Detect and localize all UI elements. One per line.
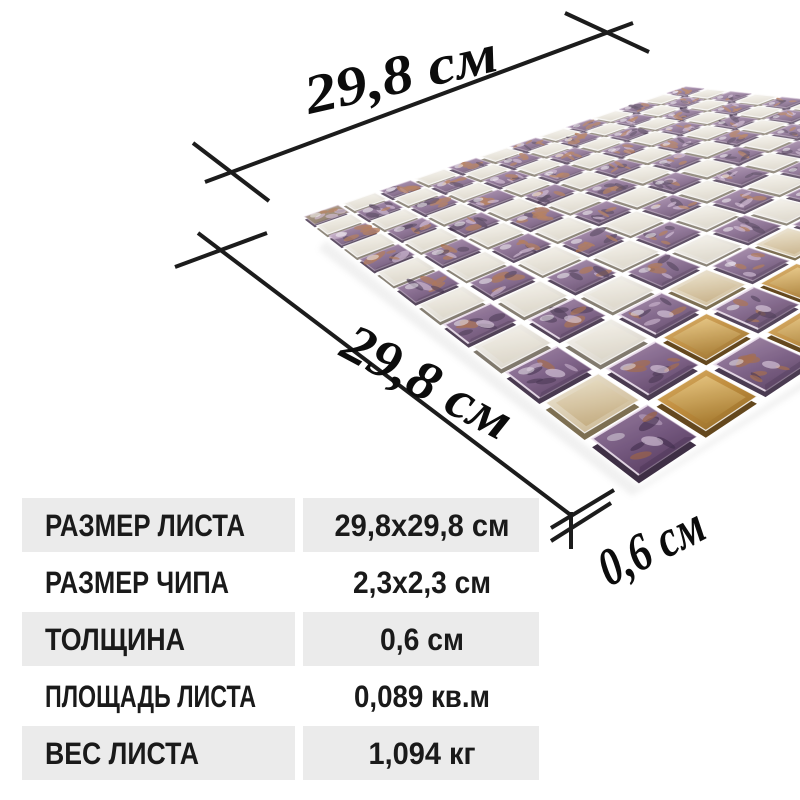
svg-text:ПЛОЩАДЬ ЛИСТА: ПЛОЩАДЬ ЛИСТА	[45, 679, 256, 714]
svg-text:1,094 кг: 1,094 кг	[369, 736, 476, 771]
svg-text:0,6 см: 0,6 см	[380, 622, 464, 657]
svg-text:РАЗМЕР ЧИПА: РАЗМЕР ЧИПА	[45, 565, 229, 600]
svg-text:ТОЛЩИНА: ТОЛЩИНА	[45, 622, 185, 657]
svg-text:ВЕС ЛИСТА: ВЕС ЛИСТА	[45, 736, 199, 771]
svg-text:0,089 кв.м: 0,089 кв.м	[354, 679, 490, 714]
svg-text:РАЗМЕР ЛИСТА: РАЗМЕР ЛИСТА	[45, 508, 245, 543]
svg-text:29,8x29,8 см: 29,8x29,8 см	[335, 508, 510, 543]
svg-text:2,3x2,3 см: 2,3x2,3 см	[353, 565, 491, 600]
